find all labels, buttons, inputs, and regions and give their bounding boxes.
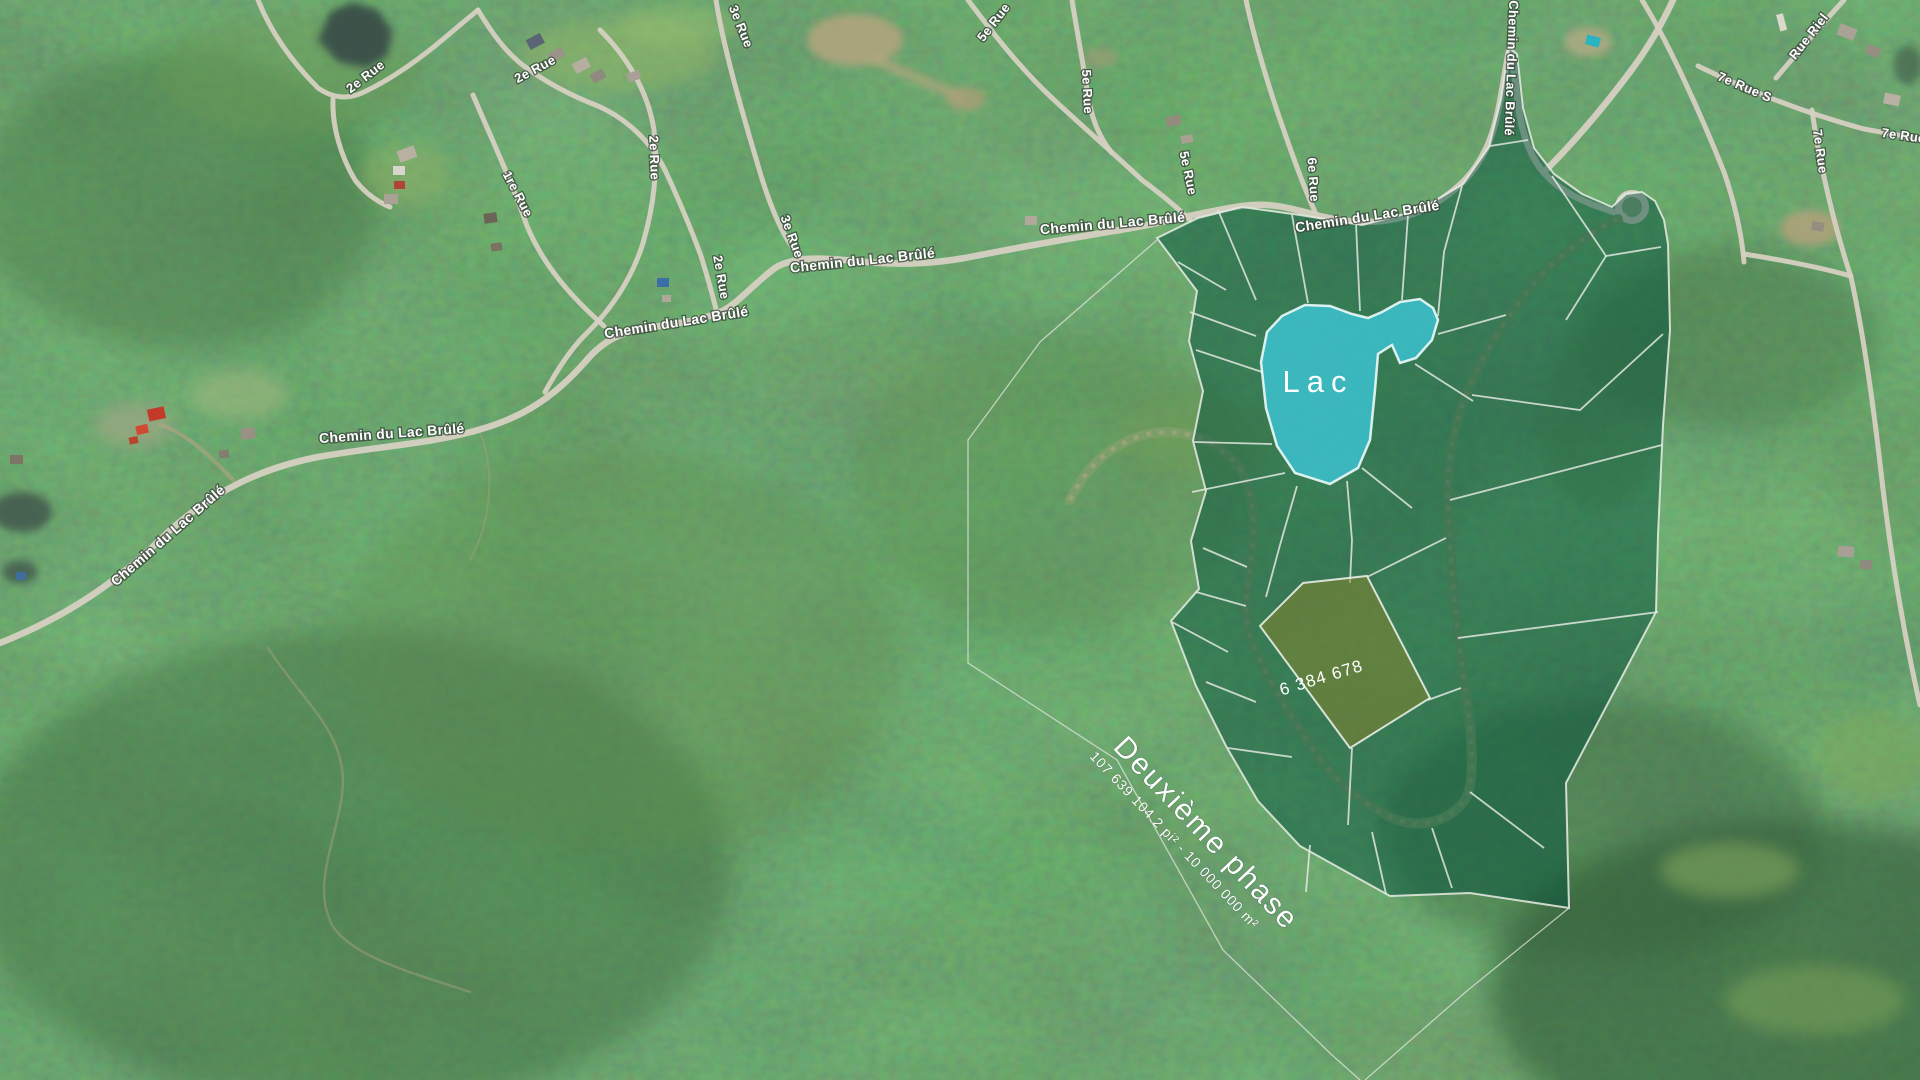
lake-label: Lac [1283, 364, 1354, 399]
road-label: 6e Rue [1304, 157, 1322, 202]
road-label: 5e Rue [1079, 69, 1096, 114]
map-canvas[interactable]: Lac 6 384 678 Deuxième phase 107 639 104… [0, 0, 1920, 1080]
road-label: 2e Rue [646, 135, 663, 180]
